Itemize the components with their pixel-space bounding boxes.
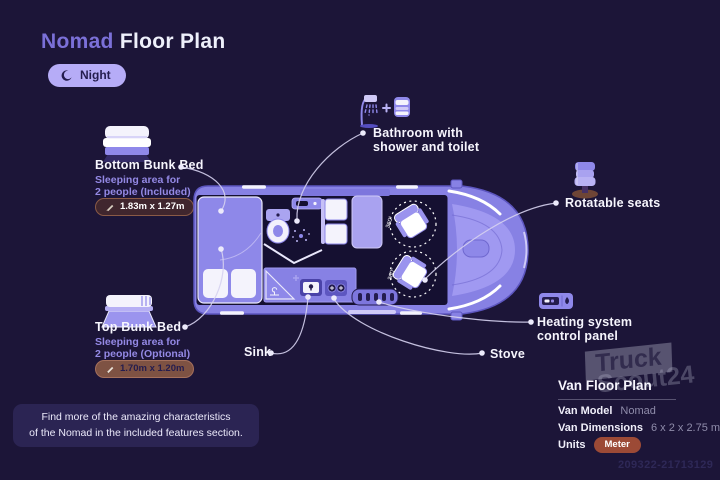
night-mode-label: Night [80,68,111,82]
rotatable-seat-icon [569,160,601,200]
heating-panel-icon [539,293,573,310]
heating-label-1: Heating system [537,315,632,329]
sink-label: Sink [244,345,271,359]
bench-seat [325,224,347,244]
footer-note-line-1: Find more of the amazing characteristics [41,410,230,425]
bottom-bunk-title: Bottom Bunk Bed [95,158,204,172]
entry-door-edge [348,310,396,314]
top-bunk-title: Top Bunk Bed [95,320,181,334]
top-bunk-dimensions-pill: 1.70m x 1.20m [95,360,194,378]
ruler-icon [105,364,115,374]
info-row-van-model: Van Model Nomad [558,405,656,417]
bathroom-label-2: shower and toilet [373,140,479,154]
top-bunk-dimensions: 1.70m x 1.20m [120,363,184,374]
van-dimensions-label: Van Dimensions [558,422,643,434]
info-row-units: Units Meter [558,437,641,453]
van-model-value: Nomad [620,405,655,417]
units-meter-toggle[interactable]: Meter [594,437,641,453]
rotatable-seats-label: Rotatable seats [565,196,660,210]
bench-seat [325,199,347,220]
night-mode-toggle[interactable]: Night [48,64,126,87]
moon-icon [60,69,73,82]
dashboard-vent [463,240,489,257]
page-title-accent: Nomad [41,30,114,53]
info-panel-title: Van Floor Plan [558,378,676,400]
van-model-label: Van Model [558,405,612,417]
units-label: Units [558,439,586,451]
footer-note-line-2: of the Nomad in the included features se… [29,426,243,441]
shower-and-toilet-icon [358,93,410,129]
ruler-icon [105,202,115,212]
reference-number: 209322-21713129 [618,459,713,471]
sink-unit [300,279,322,296]
van-dimensions-value: 6 x 2 x 2.75 m [651,422,720,434]
stove-label: Stove [490,347,525,361]
page-title: Nomad Floor Plan [41,30,226,54]
dinette-table [352,196,382,248]
footer-note: Find more of the amazing characteristics… [13,404,259,447]
info-row-van-dimensions: Van Dimensions 6 x 2 x 2.75 m [558,422,720,434]
van-floor-plan: 360° 360° [190,180,540,320]
stove-unit [325,280,347,296]
kitchen-area [264,268,356,302]
bottom-bunk-dimensions: 1.83m x 1.27m [120,201,184,212]
mirror-icon [451,180,462,188]
bathroom-label-1: Bathroom with [373,126,463,140]
heating-label-2: control panel [537,329,618,343]
bottom-bunk-dimensions-pill: 1.83m x 1.27m [95,198,194,216]
bed-area [198,197,262,303]
mirror-icon [451,312,462,320]
page-title-rest: Floor Plan [120,30,226,53]
entry-step [352,289,398,305]
